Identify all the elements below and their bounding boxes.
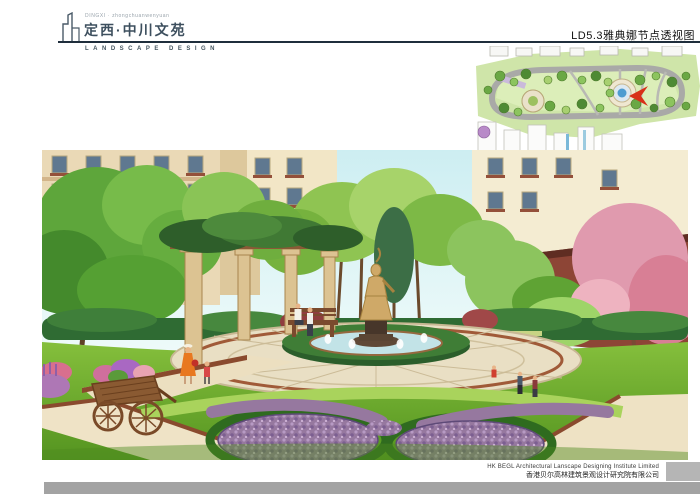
footer-gray-bar — [44, 482, 700, 494]
plan-left-plaza — [522, 90, 544, 112]
logo-title: 定西·中川文苑 — [84, 20, 187, 40]
perspective-rendering — [42, 150, 688, 460]
person-walker-2 — [533, 376, 538, 397]
sheet-title: LD5.3雅典娜节点透视图 — [571, 27, 695, 43]
company-credit: HK BEGL Architectural Lanscape Designing… — [487, 464, 659, 480]
site-plan-inset — [470, 46, 700, 152]
person-walker-1 — [518, 372, 523, 394]
logo-subtitle: LANDSCAPE DESIGN — [85, 46, 219, 52]
presentation-sheet: DINGXI · zhongchuanwenyuan 定西·中川文苑 LANDS… — [0, 0, 700, 495]
building-logo-icon — [60, 12, 82, 43]
company-name-cn: 香港贝尔高林建筑景观设计研究院有限公司 — [487, 472, 659, 481]
person-kid-red — [492, 366, 497, 378]
logo-tagline: DINGXI · zhongchuanwenyuan — [85, 13, 170, 19]
plan-field — [476, 49, 700, 138]
company-name-en: HK BEGL Architectural Lanscape Designing… — [487, 464, 659, 472]
footer-gray-block — [666, 462, 700, 481]
